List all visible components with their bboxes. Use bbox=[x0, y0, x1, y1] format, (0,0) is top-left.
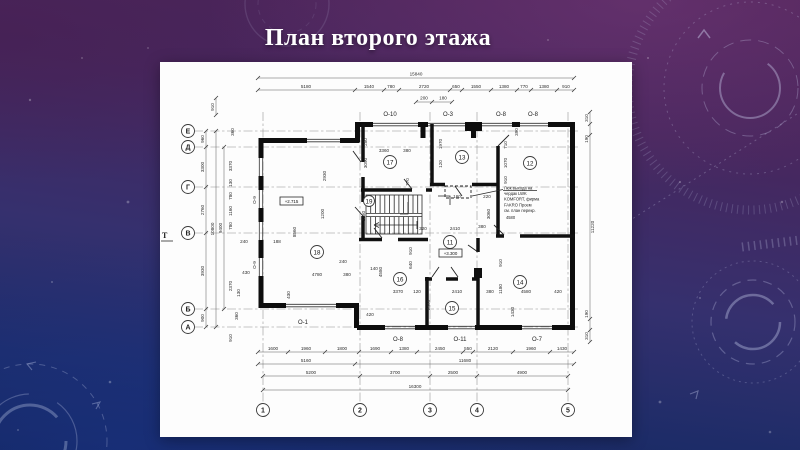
wall-pier bbox=[421, 127, 426, 138]
dim: 120 bbox=[413, 289, 421, 294]
dim: 780 bbox=[228, 192, 233, 200]
dim: 250 bbox=[363, 138, 368, 146]
opening-label: О-3 bbox=[443, 112, 454, 118]
axis-bubbles-bottom: 1 2 3 4 5 bbox=[257, 404, 575, 417]
dim: 120 bbox=[438, 160, 443, 168]
dim: 240 bbox=[240, 239, 248, 244]
deco-circle bbox=[702, 40, 798, 136]
interior-dimensions: 3360 380 250 3090 770 1970 120 2380 8560… bbox=[286, 128, 562, 317]
dim: 640 bbox=[408, 261, 413, 269]
dim: 1960 bbox=[301, 346, 312, 351]
opening-label: О-11 bbox=[454, 337, 468, 343]
axis-label: Г bbox=[186, 185, 190, 192]
opening-label: О-8 bbox=[496, 112, 507, 118]
dim: 1690 bbox=[370, 346, 381, 351]
opening-label: О-8 bbox=[528, 112, 539, 118]
dim: 2410 bbox=[452, 289, 463, 294]
deco-circle bbox=[711, 280, 795, 364]
room-label: 16 bbox=[397, 276, 404, 283]
dim: 390 bbox=[514, 128, 519, 136]
floor-plan-panel: 15840 5180 1540 780 2720 650 1550 1380 7… bbox=[160, 62, 632, 437]
dim: 2500 bbox=[448, 370, 459, 375]
dim: 188 bbox=[273, 239, 281, 244]
axis-label: Б bbox=[185, 307, 190, 314]
annotation-value: 4580 bbox=[506, 215, 516, 220]
deco-tick-row bbox=[742, 240, 800, 247]
dim: 910 bbox=[503, 176, 508, 184]
room-label: 17 bbox=[387, 159, 394, 166]
annotation-line: KOMFORT, фирма bbox=[504, 197, 540, 202]
opening-label: О-9 bbox=[252, 196, 257, 204]
dim: 420 bbox=[554, 289, 562, 294]
dim: 1800 bbox=[337, 346, 348, 351]
room-label: 12 bbox=[527, 160, 534, 167]
dim: 3060 bbox=[486, 208, 491, 219]
dim: 240 bbox=[339, 259, 347, 264]
dim: 360 bbox=[230, 128, 235, 136]
dim: 190 bbox=[584, 135, 589, 143]
annotation-line: FAKRO Проем bbox=[504, 202, 532, 207]
axis-label: 1 bbox=[261, 408, 265, 415]
dim: 1540 bbox=[364, 84, 375, 89]
dim: 2760 bbox=[200, 204, 205, 215]
dim: 11220 bbox=[590, 220, 595, 233]
opening-label: О-7 bbox=[532, 337, 543, 343]
dim: 2720 bbox=[419, 84, 430, 89]
opening-label: О-8 bbox=[393, 337, 404, 343]
dim: 910 bbox=[562, 84, 570, 89]
room-label: 13 bbox=[459, 154, 466, 161]
dim: 1160 bbox=[228, 206, 233, 216]
dim: 130 bbox=[228, 179, 233, 187]
dim: 420 bbox=[366, 312, 374, 317]
room-label: 14 bbox=[517, 279, 524, 286]
dim: 360 bbox=[234, 312, 239, 320]
elevation-label: +2.715 bbox=[285, 199, 299, 204]
dim: 1600 bbox=[268, 346, 279, 351]
room-label: 11 bbox=[447, 239, 454, 246]
dim: 2930 bbox=[322, 170, 327, 181]
dim: 2300 bbox=[426, 299, 431, 310]
dim: 650 bbox=[452, 84, 460, 89]
axis-label: 4 bbox=[475, 408, 479, 415]
top-dimensions: 15840 5180 1540 780 2720 650 1550 1380 7… bbox=[301, 72, 570, 119]
dim: 180 bbox=[439, 96, 447, 101]
elevation-label: +3.300 bbox=[444, 251, 458, 256]
dim: 3700 bbox=[390, 370, 401, 375]
axis-label: Е bbox=[186, 129, 191, 136]
opening-label: О-10 bbox=[383, 112, 397, 118]
dim: 900 bbox=[200, 314, 205, 322]
dim-total-top: 15840 bbox=[410, 72, 423, 77]
dim: 1380 bbox=[499, 84, 510, 89]
dim: 1200 bbox=[320, 208, 325, 219]
room-label: 18 bbox=[314, 249, 321, 256]
dim: 780 bbox=[228, 222, 233, 230]
dim: 1960 bbox=[526, 346, 537, 351]
right-dimensions: 310 190 11220 190 310 bbox=[584, 114, 595, 340]
axis-label: В bbox=[185, 231, 190, 238]
dim: 2120 bbox=[488, 346, 499, 351]
dim: 910 bbox=[210, 103, 215, 111]
deco-circle bbox=[0, 405, 66, 450]
dim: 3930 bbox=[200, 265, 205, 276]
dim: 380 bbox=[478, 224, 486, 229]
room-label: 15 bbox=[449, 305, 456, 312]
dim: 710 bbox=[503, 141, 508, 149]
dim: 4780 bbox=[312, 272, 323, 277]
dim: 310 bbox=[584, 114, 589, 122]
dim: 910 bbox=[228, 334, 233, 342]
annotation-line: Люк выхода на bbox=[504, 186, 533, 191]
dim: 200 bbox=[420, 96, 428, 101]
annotation-line: чердак LWK bbox=[504, 191, 527, 196]
dim: 2380 bbox=[361, 210, 366, 221]
dim: 130 bbox=[236, 289, 241, 297]
dim: 11680 bbox=[459, 358, 472, 363]
dim: 160 bbox=[453, 194, 461, 199]
dim: 190 bbox=[584, 310, 589, 318]
opening-label: О-9 bbox=[252, 261, 257, 269]
dim: 2450 bbox=[435, 346, 446, 351]
dim: 220 bbox=[483, 194, 491, 199]
dim: 4900 bbox=[517, 370, 528, 375]
dim: 770 bbox=[520, 84, 528, 89]
t-pier bbox=[465, 127, 482, 138]
dim: 310 bbox=[584, 332, 589, 340]
windows bbox=[259, 123, 552, 328]
presentation-slide: План второго этажа 15840 5180 1 bbox=[0, 0, 800, 450]
dim: 910 bbox=[408, 247, 413, 255]
dim: 910 bbox=[498, 259, 503, 267]
dim: 2370 bbox=[228, 280, 233, 291]
dim-total-bottom: 16300 bbox=[409, 384, 422, 389]
dim: 1430 bbox=[557, 346, 568, 351]
bottom-dimensions: О-1 О-8 О-11 О-7 1600 1960 1800 1690 138… bbox=[268, 320, 568, 389]
dim: 380 bbox=[403, 148, 411, 153]
dim: 2410 bbox=[450, 226, 461, 231]
deco-arrow-icon bbox=[690, 391, 698, 399]
dim: 5160 bbox=[301, 358, 312, 363]
deco-circle bbox=[720, 58, 780, 118]
deco-arrow-icon bbox=[27, 362, 36, 370]
room-label: 19 bbox=[366, 198, 373, 205]
dim: 770 bbox=[405, 178, 410, 186]
dim: 1070 bbox=[503, 157, 508, 168]
deco-circle bbox=[692, 261, 800, 383]
annotation-line: см. план перекр. bbox=[504, 208, 536, 213]
dim: 1380 bbox=[399, 346, 410, 351]
dim: 3090 bbox=[363, 157, 368, 168]
axis-bubbles-left: Е Д Г В Б А bbox=[182, 125, 195, 334]
axis-label: 5 bbox=[566, 408, 570, 415]
dim: 380 bbox=[343, 272, 351, 277]
axis-label: 3 bbox=[428, 408, 432, 415]
axis-label: 2 bbox=[358, 408, 362, 415]
slide-title: План второго этажа bbox=[0, 25, 756, 52]
dim: 3300 bbox=[200, 161, 205, 172]
dim: 430 bbox=[286, 291, 291, 299]
dim: 320 bbox=[419, 226, 427, 231]
dim: 3360 bbox=[379, 148, 390, 153]
axis-grid-lines bbox=[194, 112, 578, 402]
dim: 10800 bbox=[210, 222, 215, 235]
dim: 8560 bbox=[292, 226, 297, 237]
deco-dotted-line bbox=[618, 112, 800, 228]
dim: 3370 bbox=[228, 160, 233, 171]
dim: 1550 bbox=[471, 84, 482, 89]
axis-label: А bbox=[185, 325, 190, 332]
floor-plan-drawing: 15840 5180 1540 780 2720 650 1550 1380 7… bbox=[160, 62, 632, 437]
opening-label: О-1 bbox=[298, 320, 309, 326]
wall-pier bbox=[474, 268, 482, 278]
dim: 9400 bbox=[218, 222, 223, 233]
dim: 4580 bbox=[521, 289, 532, 294]
dim: 5200 bbox=[306, 370, 317, 375]
deco-circle bbox=[726, 295, 780, 349]
dim: 550 bbox=[464, 346, 472, 351]
dim: 780 bbox=[387, 84, 395, 89]
dim: 3370 bbox=[393, 289, 404, 294]
dim: 1380 bbox=[539, 84, 550, 89]
dim: 5180 bbox=[301, 84, 312, 89]
dim: 430 bbox=[242, 270, 250, 275]
dim: 960 bbox=[200, 135, 205, 143]
dim: 1180 bbox=[498, 284, 503, 294]
section-marker: Т bbox=[162, 231, 168, 240]
dim: 380 bbox=[486, 289, 494, 294]
dim: 1970 bbox=[438, 138, 443, 149]
annotation-note: Люк выхода на чердак LWK KOMFORT, фирма … bbox=[472, 186, 540, 221]
dim: 4580 bbox=[378, 266, 383, 277]
axis-label: Д bbox=[186, 145, 191, 152]
dim: 1430 bbox=[510, 306, 515, 317]
